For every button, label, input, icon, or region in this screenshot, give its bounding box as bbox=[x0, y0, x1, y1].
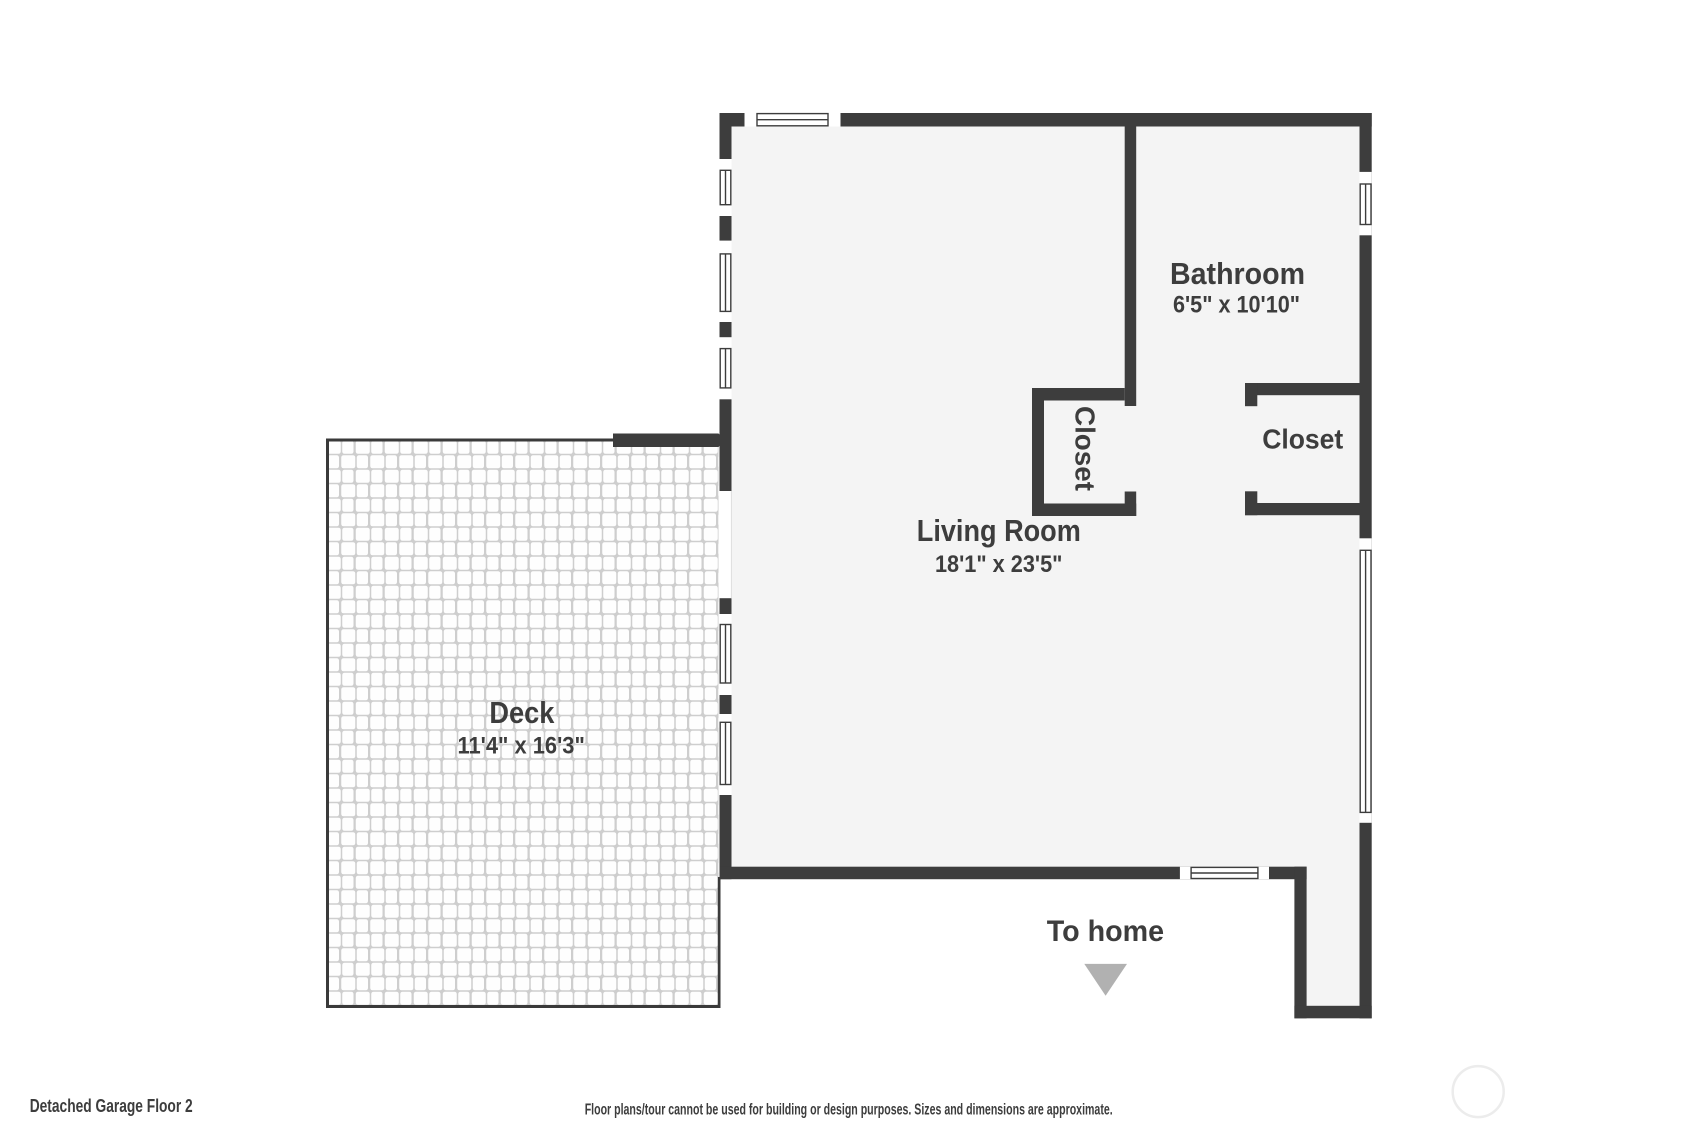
svg-text:6'5" x 10'10": 6'5" x 10'10" bbox=[1173, 292, 1300, 319]
svg-text:18'1" x 23'5": 18'1" x 23'5" bbox=[935, 551, 1063, 578]
svg-text:Detached Garage Floor 2: Detached Garage Floor 2 bbox=[30, 1096, 193, 1117]
svg-text:Bathroom: Bathroom bbox=[1170, 257, 1305, 291]
svg-text:Living Room: Living Room bbox=[917, 514, 1081, 548]
svg-text:11'4" x 16'3": 11'4" x 16'3" bbox=[458, 733, 585, 760]
svg-text:Closet: Closet bbox=[1070, 406, 1101, 491]
svg-text:Closet: Closet bbox=[1262, 424, 1343, 455]
svg-text:Floor plans/tour cannot be use: Floor plans/tour cannot be used for buil… bbox=[585, 1102, 1113, 1119]
svg-text:To home: To home bbox=[1047, 915, 1164, 948]
svg-text:Deck: Deck bbox=[489, 696, 554, 730]
